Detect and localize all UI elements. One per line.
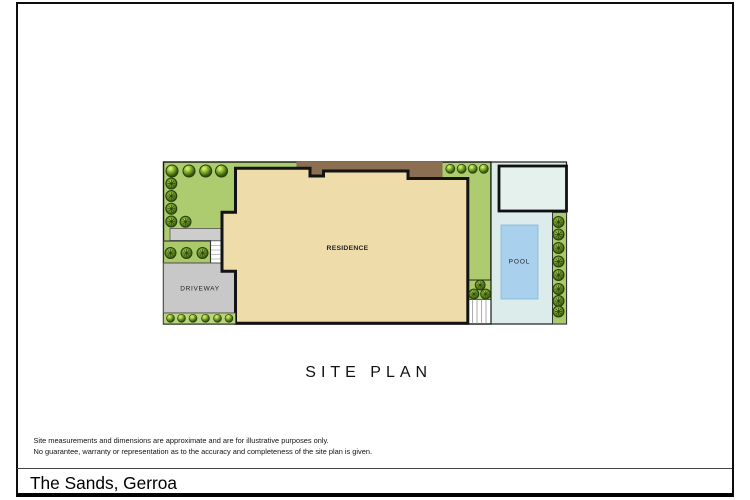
svg-text:POOL: POOL — [509, 259, 531, 266]
svg-text:DRIVEWAY: DRIVEWAY — [180, 286, 220, 293]
svg-text:RESIDENCE: RESIDENCE — [327, 245, 369, 252]
